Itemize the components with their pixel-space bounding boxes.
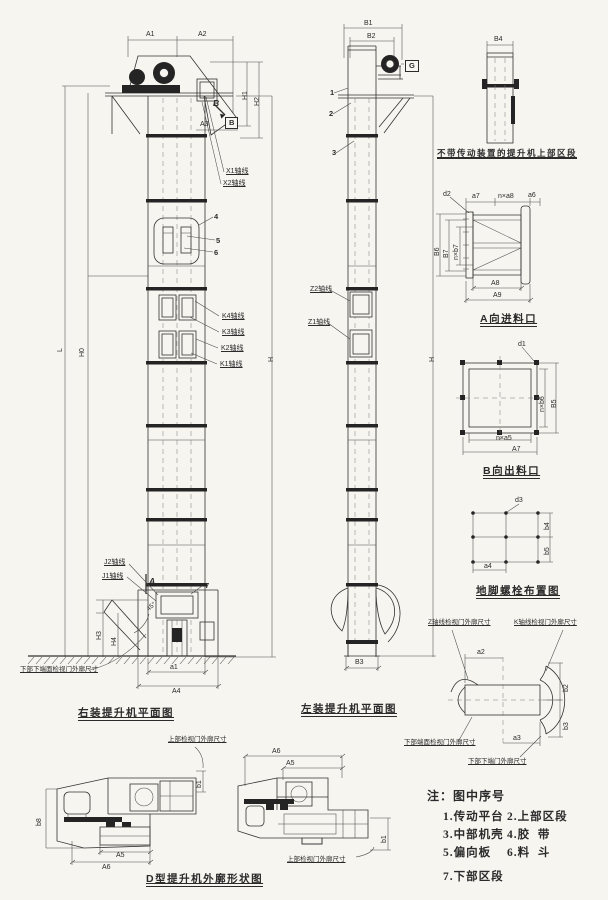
label-markers-a_sec: A: [149, 577, 155, 586]
label-dims-na5: n×a5: [496, 435, 512, 442]
left-mount-elevation: [328, 24, 436, 671]
label-dims-d1: d1: [518, 341, 526, 348]
label-dims-h: H: [268, 357, 275, 362]
outline-d-right: [238, 754, 391, 857]
label-2-0: 5.偏向板: [443, 848, 491, 860]
label-dims-a6: A6: [102, 864, 111, 871]
label-callouts-k3: K3轴线: [222, 329, 245, 336]
label-dims-b3: b3: [563, 722, 570, 730]
label-3-0: 7.下部区段: [443, 872, 504, 884]
label-callouts-k2: K2轴线: [221, 345, 244, 352]
label-callouts-k1: K1轴线: [220, 361, 243, 368]
label-dims-b5: b5: [544, 547, 551, 555]
label-notes-title: 注：图中序号: [427, 790, 505, 802]
label-outline_d-door_label: 上部检视门外廓尺寸: [168, 737, 227, 744]
label-dims-b6: B6: [434, 247, 441, 256]
label-labels-br: 下部下端门外廓尺寸: [468, 759, 527, 766]
label-dims-b3: B3: [355, 659, 364, 666]
label-dims-h: H: [429, 357, 436, 362]
door-outline-detail: [448, 630, 565, 757]
label-callouts-n5: 5: [216, 237, 220, 245]
label-dims-a4: a4: [484, 563, 492, 570]
label-dims-h0: H0: [79, 348, 86, 357]
label-anchor-caption: 地脚螺栓布置图: [476, 586, 560, 599]
label-callouts-x2: X2轴线: [223, 180, 246, 187]
inlet-view: [436, 197, 540, 303]
label-dims-h4: H4: [111, 637, 118, 646]
label-dims-a3: A3: [200, 121, 209, 128]
label-dims-b4: b4: [544, 522, 551, 530]
label-dims-h2: H2: [254, 97, 261, 106]
label-dims-a5: A5: [116, 852, 125, 859]
label-callouts-j1: J1轴线: [102, 573, 123, 580]
label-callouts-n1: 1: [330, 89, 334, 97]
label-labels-bl: 下部端面检视门外廓尺寸: [404, 740, 476, 747]
label-dims-h1: H1: [242, 91, 249, 100]
label-callouts-n6: 6: [214, 249, 218, 257]
label-left_mount-caption: 左装提升机平面图: [301, 704, 397, 717]
label-labels-tr: K轴线检视门外廓尺寸: [514, 620, 577, 627]
label-2-1: 6.料 斗: [507, 848, 550, 860]
label-dims-nb6: n×b6: [539, 396, 546, 412]
label-callouts-n4: 4: [214, 213, 218, 221]
label-dims-b1: b1: [381, 835, 388, 843]
label-dims-h3: H3: [96, 631, 103, 640]
label-inlet-caption: A向进料口: [480, 314, 537, 327]
label-markers-g: G: [405, 60, 419, 72]
label-dims-b2: b2: [563, 684, 570, 692]
label-dims-a4: A4: [172, 688, 181, 695]
label-callouts-n2: 2: [329, 110, 333, 118]
upper-section-view: [482, 41, 519, 143]
label-dims-l: L: [57, 348, 64, 352]
drawing-sheet: A1A2H1H2BBA3X1轴线X2轴线456K4轴线K3轴线K2轴线K1轴线H…: [0, 0, 608, 900]
label-callouts-z1: Z1轴线: [308, 319, 330, 326]
label-dims-d3: d3: [515, 497, 523, 504]
label-callouts-x1: X1轴线: [226, 168, 249, 175]
label-callouts-n3: 3: [332, 149, 336, 157]
label-0-1: 2.上部区段: [507, 812, 568, 824]
label-callouts-z2: Z2轴线: [310, 286, 332, 293]
label-dims-a2: a2: [477, 649, 485, 656]
label-callouts-n7: 7: [205, 582, 209, 590]
label-dims-a6: A6: [272, 748, 281, 755]
label-outline_d-caption: D型提升机外廓形状图: [146, 874, 263, 887]
label-dims-a5: A5: [286, 760, 295, 767]
label-outlet-caption: B向出料口: [483, 466, 540, 479]
outline-d-left: [46, 747, 206, 865]
label-1-0: 3.中部机壳: [443, 830, 504, 842]
label-dims-b7: B7: [443, 249, 450, 258]
label-dims-a3: a3: [513, 735, 521, 742]
label-callouts-k4: K4轴线: [222, 313, 245, 320]
label-upper_no_drive-caption: 不带传动装置的提升机上部区段: [437, 149, 577, 159]
label-right_mount-caption: 右装提升机平面图: [78, 708, 174, 721]
label-dims-a7: A7: [512, 446, 521, 453]
label-outline_d-door_label: 上部检视门外廓尺寸: [287, 857, 346, 864]
label-dims-a2: A2: [198, 31, 207, 38]
label-dims-b5: B5: [551, 399, 558, 408]
label-dims-b4: B4: [494, 36, 503, 43]
label-dims-a9: A9: [493, 292, 502, 299]
label-right_mount-note_door: 下部下端面检视门外廓尺寸: [20, 667, 98, 674]
label-dims-a8: A8: [491, 280, 500, 287]
label-dims-a7: a7: [472, 193, 480, 200]
label-0-0: 1.传动平台: [443, 812, 504, 824]
label-1-1: 4.胶 带: [507, 830, 550, 842]
label-labels-tl: Z轴线检视门外廓尺寸: [428, 620, 490, 627]
label-markers-b_cut: B: [213, 99, 219, 108]
label-dims-a1: A1: [146, 31, 155, 38]
label-callouts-j2: J2轴线: [104, 559, 125, 566]
label-dims-d2: d2: [443, 191, 451, 198]
label-dims-nb7: n×b7: [453, 244, 460, 260]
label-dims-b8: b8: [36, 818, 43, 826]
label-dims-b2: B2: [367, 33, 376, 40]
label-dims-b1: b1: [196, 780, 203, 788]
label-dims-na8: n×a8: [498, 193, 514, 200]
label-markers-b_box: B: [225, 117, 238, 129]
label-dims-a1: a1: [170, 664, 178, 671]
label-dims-b1: B1: [364, 20, 373, 27]
label-dims-a6: a6: [528, 192, 536, 199]
